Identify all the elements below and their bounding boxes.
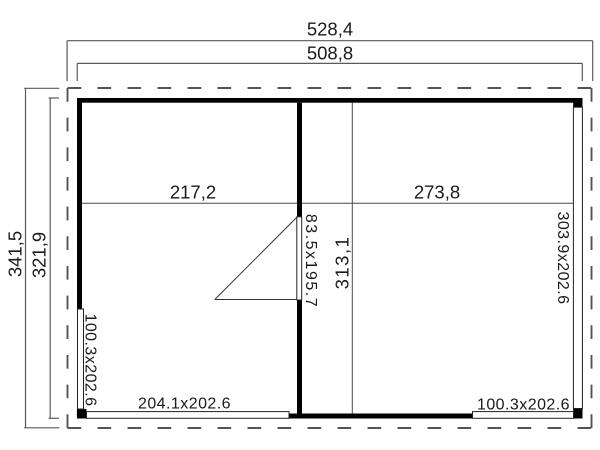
svg-text:204.1x202.6: 204.1x202.6 (138, 395, 231, 412)
svg-text:83.5x195.7: 83.5x195.7 (302, 214, 319, 308)
svg-text:100.3x202.6: 100.3x202.6 (477, 396, 570, 413)
svg-text:313,1: 313,1 (331, 236, 352, 290)
svg-text:217,2: 217,2 (170, 182, 216, 203)
svg-text:273,8: 273,8 (414, 182, 460, 203)
svg-text:508,8: 508,8 (307, 43, 353, 64)
svg-text:100.3x202.6: 100.3x202.6 (82, 313, 99, 406)
svg-text:528,4: 528,4 (307, 19, 353, 40)
svg-text:321,9: 321,9 (29, 232, 50, 278)
svg-text:303.9x202.6: 303.9x202.6 (554, 211, 571, 304)
svg-text:341,5: 341,5 (5, 231, 26, 277)
